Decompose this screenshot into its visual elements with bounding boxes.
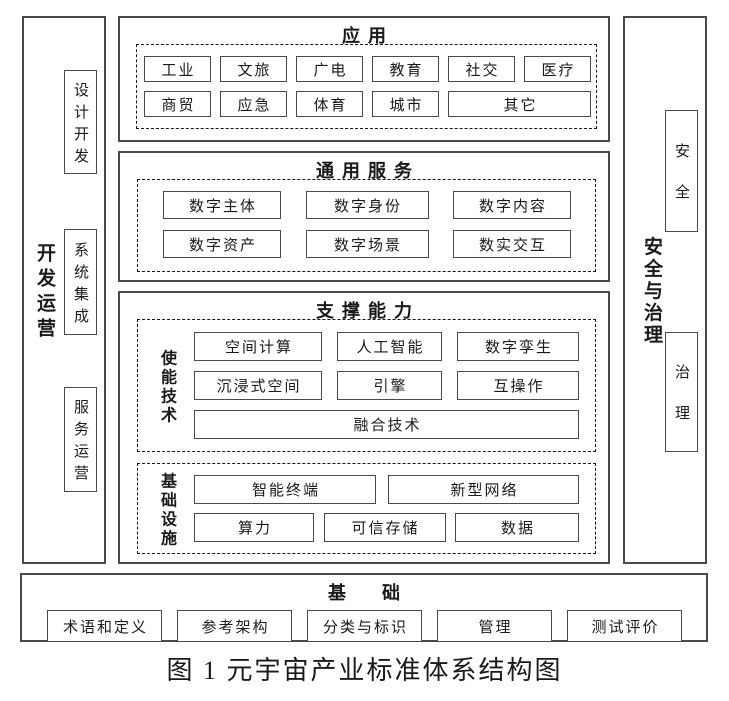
foundation-row: 术语和定义 参考架构 分类与标识 管理 测试评价 [47,610,682,642]
box-digital-content: 数字内容 [453,191,571,219]
box-emergency: 应急 [220,91,287,117]
box-digital-twin: 数字孪生 [457,332,579,361]
box-reference-architecture: 参考架构 [177,610,292,642]
box-spatial-computing: 空间计算 [194,332,322,361]
enabling-tech-row-3: 融合技术 [194,410,579,439]
section-foundation: 基础 术语和定义 参考架构 分类与标识 管理 测试评价 [20,573,708,642]
box-smart-terminal: 智能终端 [194,475,376,504]
figure-canvas: 开发运营 设计开发 系统集成 服务运营 安全与治理 安全 治理 应用 工业 文旅… [0,0,729,701]
section-foundation-title: 基础 [22,579,706,605]
box-new-network: 新型网络 [388,475,579,504]
box-design-development-label: 设计开发 [70,75,91,170]
box-artificial-intelligence: 人工智能 [337,332,442,361]
common-services-row-1: 数字主体 数字身份 数字内容 [163,191,571,219]
box-city: 城市 [372,91,439,117]
box-terms-definitions: 术语和定义 [47,610,162,642]
section-common-services: 通用服务 数字主体 数字身份 数字内容 数字资产 数字场景 数实交互 [118,151,610,282]
box-education: 教育 [372,56,439,82]
application-row-1: 工业 文旅 广电 教育 社交 医疗 [144,56,591,82]
box-culture-tourism: 文旅 [220,56,287,82]
pillar-dev-operations-label: 开发运营 [31,237,58,343]
box-system-integration-label: 系统集成 [70,235,91,330]
box-immersive-space: 沉浸式空间 [194,371,322,400]
enabling-tech-row-1: 空间计算 人工智能 数字孪生 [194,332,579,361]
infrastructure-row-1: 智能终端 新型网络 [194,475,579,504]
box-medical: 医疗 [524,56,591,82]
box-social: 社交 [448,56,515,82]
enabling-tech-label: 使能技术 [154,346,178,425]
box-design-development: 设计开发 [64,70,97,174]
box-interoperability: 互操作 [457,371,579,400]
box-others: 其它 [448,91,591,117]
box-governance: 治理 [665,332,698,452]
box-classification-identification: 分类与标识 [307,610,422,642]
infrastructure-row-2: 算力 可信存储 数据 [194,513,579,542]
box-digital-subject: 数字主体 [163,191,281,219]
box-security-label: 安全 [671,117,692,225]
box-digital-scene: 数字场景 [306,230,429,258]
box-digital-asset: 数字资产 [163,230,281,258]
box-governance-label: 治理 [671,338,692,446]
box-broadcasting: 广电 [296,56,363,82]
box-data: 数据 [455,513,579,542]
box-convergence-technology: 融合技术 [194,410,579,439]
box-industry: 工业 [144,56,211,82]
infrastructure-dashed-group: 基础设施 智能终端 新型网络 算力 可信存储 数据 [137,463,596,554]
box-trusted-storage: 可信存储 [324,513,446,542]
application-dashed-group: 工业 文旅 广电 教育 社交 医疗 商贸 应急 体育 城市 其它 [136,44,597,129]
box-test-evaluation: 测试评价 [567,610,682,642]
enabling-tech-dashed-group: 使能技术 空间计算 人工智能 数字孪生 沉浸式空间 引擎 互操作 融合技术 [137,319,596,452]
application-row-2: 商贸 应急 体育 城市 其它 [144,91,591,117]
box-security: 安全 [665,110,698,232]
box-digital-identity: 数字身份 [306,191,429,219]
common-services-dashed-group: 数字主体 数字身份 数字内容 数字资产 数字场景 数实交互 [137,179,596,272]
box-sports: 体育 [296,91,363,117]
box-engine: 引擎 [337,371,442,400]
section-application: 应用 工业 文旅 广电 教育 社交 医疗 商贸 应急 体育 城市 其它 [118,16,610,142]
box-digital-real-interaction: 数实交互 [453,230,571,258]
pillar-dev-operations: 开发运营 设计开发 系统集成 服务运营 [22,16,106,564]
pillar-security-governance: 安全与治理 安全 治理 [623,16,707,564]
box-computing-power: 算力 [194,513,314,542]
pillar-security-governance-label: 安全与治理 [638,234,665,347]
box-service-operation: 服务运营 [64,387,97,492]
box-commerce: 商贸 [144,91,211,117]
box-management: 管理 [437,610,552,642]
section-support-capability: 支撑能力 使能技术 空间计算 人工智能 数字孪生 沉浸式空间 引擎 互操作 融合… [118,291,610,564]
common-services-row-2: 数字资产 数字场景 数实交互 [163,230,571,258]
box-system-integration: 系统集成 [64,229,97,335]
infrastructure-label: 基础设施 [154,469,178,548]
box-service-operation-label: 服务运营 [70,392,91,487]
figure-caption: 图 1 元宇宙产业标准体系结构图 [0,650,729,687]
enabling-tech-row-2: 沉浸式空间 引擎 互操作 [194,371,579,400]
